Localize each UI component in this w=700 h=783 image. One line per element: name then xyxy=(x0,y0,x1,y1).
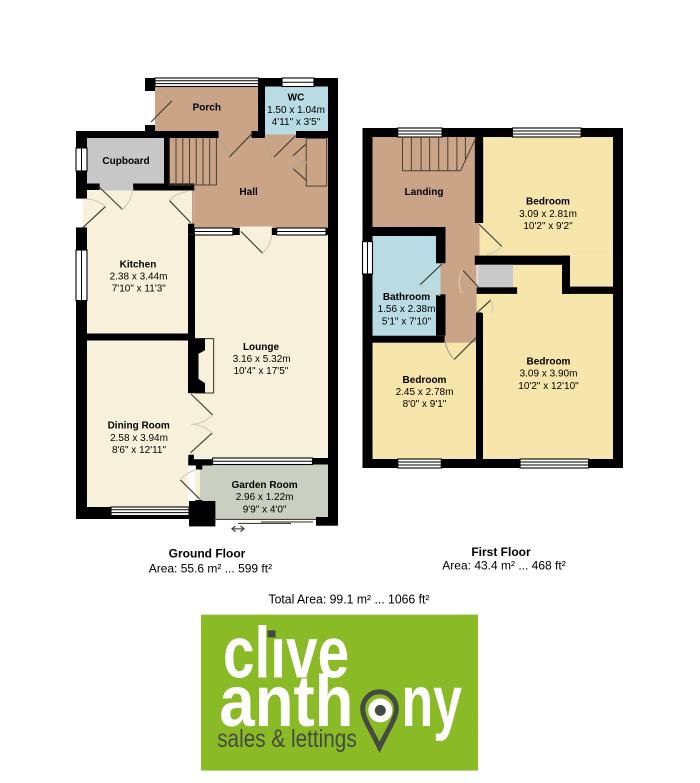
svg-text:8'0" x 9'1": 8'0" x 9'1" xyxy=(403,399,447,410)
svg-text:10'2" x 12'10": 10'2" x 12'10" xyxy=(518,381,579,392)
svg-text:3.16 x 5.32m: 3.16 x 5.32m xyxy=(233,354,291,365)
svg-text:Kitchen: Kitchen xyxy=(120,259,157,270)
svg-text:WC: WC xyxy=(288,93,305,104)
svg-text:2.96 x 1.22m: 2.96 x 1.22m xyxy=(236,492,294,503)
svg-text:ny: ny xyxy=(402,662,463,742)
svg-text:First Floor: First Floor xyxy=(471,545,531,559)
svg-text:Garden Room: Garden Room xyxy=(232,480,298,491)
svg-text:Lounge: Lounge xyxy=(243,342,280,353)
svg-text:10'2" x 9'2": 10'2" x 9'2" xyxy=(523,221,573,232)
svg-text:Porch: Porch xyxy=(193,103,221,114)
svg-text:2.45 x 2.78m: 2.45 x 2.78m xyxy=(396,387,454,398)
svg-text:1.50 x 1.04m: 1.50 x 1.04m xyxy=(267,105,325,116)
svg-text:Landing: Landing xyxy=(405,187,444,198)
svg-text:8'6" x 12'11": 8'6" x 12'11" xyxy=(112,445,167,456)
svg-text:Area: 55.6 m² ... 599 ft²: Area: 55.6 m² ... 599 ft² xyxy=(149,562,272,576)
svg-text:Bedroom: Bedroom xyxy=(403,375,447,386)
svg-text:Bedroom: Bedroom xyxy=(526,197,570,208)
svg-text:10'4" x 17'5": 10'4" x 17'5" xyxy=(233,366,288,377)
svg-text:Total Area: 99.1 m² ... 1066 f: Total Area: 99.1 m² ... 1066 ft² xyxy=(269,592,431,607)
svg-text:2.38 x 3.44m: 2.38 x 3.44m xyxy=(110,272,168,283)
svg-text:Cupboard: Cupboard xyxy=(102,156,149,167)
svg-text:3.09 x 3.90m: 3.09 x 3.90m xyxy=(520,369,578,380)
svg-text:sales & lettings: sales & lettings xyxy=(217,725,357,753)
svg-text:Bedroom: Bedroom xyxy=(527,356,571,367)
svg-text:5'1" x 7'10": 5'1" x 7'10" xyxy=(382,316,432,327)
svg-text:Hall: Hall xyxy=(239,187,258,198)
svg-text:Area: 43.4 m² ... 468 ft²: Area: 43.4 m² ... 468 ft² xyxy=(442,559,565,573)
svg-text:9'9" x 4'0": 9'9" x 4'0" xyxy=(243,504,287,515)
svg-text:4'11" x 3'5": 4'11" x 3'5" xyxy=(272,117,321,128)
svg-text:Bathroom: Bathroom xyxy=(383,292,430,303)
svg-text:2.58 x 3.94m: 2.58 x 3.94m xyxy=(110,433,168,444)
svg-text:3.09 x 2.81m: 3.09 x 2.81m xyxy=(519,209,577,220)
svg-text:7'10" x 11'3": 7'10" x 11'3" xyxy=(112,284,167,295)
svg-text:1.56 x 2.38m: 1.56 x 2.38m xyxy=(378,304,436,315)
svg-text:Ground Floor: Ground Floor xyxy=(169,547,246,561)
svg-text:Dining Room: Dining Room xyxy=(108,421,170,432)
